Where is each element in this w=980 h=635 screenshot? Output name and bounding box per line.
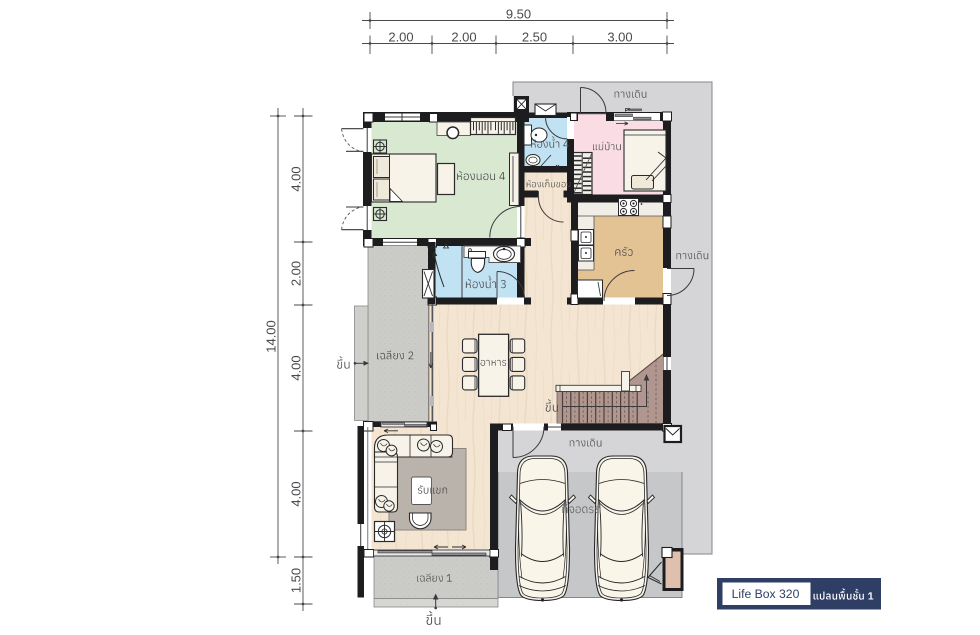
svg-text:14.00: 14.00	[264, 320, 279, 353]
svg-text:2.00: 2.00	[388, 30, 413, 45]
svg-text:4.00: 4.00	[289, 355, 304, 380]
svg-text:4.00: 4.00	[289, 166, 304, 191]
svg-text:3.00: 3.00	[607, 30, 632, 45]
svg-text:9.50: 9.50	[506, 7, 531, 22]
svg-text:1.50: 1.50	[289, 568, 304, 593]
svg-text:2.00: 2.00	[289, 261, 304, 286]
svg-text:Life Box 320: Life Box 320	[732, 587, 800, 601]
svg-text:2.50: 2.50	[522, 30, 547, 45]
svg-text:4.00: 4.00	[289, 481, 304, 506]
svg-text:2.00: 2.00	[451, 30, 476, 45]
